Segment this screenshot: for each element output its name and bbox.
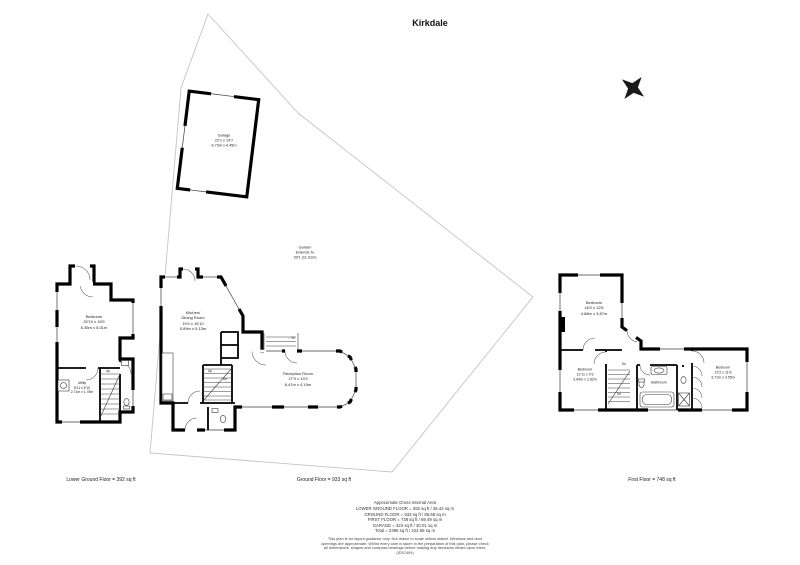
summary-line: LOWER GROUND FLOOR = 392 sq ft / 36.42 s… bbox=[356, 506, 454, 512]
first-floor-plan bbox=[560, 275, 747, 410]
lg-utility-label: Utility8'11 x 5'102.71m x 1.78m bbox=[71, 381, 93, 395]
lg-toilet bbox=[124, 399, 130, 409]
bathroom-toilet bbox=[639, 379, 645, 387]
lg-sink bbox=[122, 361, 129, 366]
first-caption: First Floor = 748 sq ft bbox=[628, 477, 675, 483]
area-summary-heading: Approximate Gross Internal Area bbox=[356, 500, 454, 506]
lg-stairs-up-label: Up bbox=[106, 369, 110, 373]
page-title: Kirkdale bbox=[412, 18, 448, 28]
entrance-arrow-icon: ← bbox=[287, 336, 290, 340]
ff-bedroom1-label: Bedroom16'0 x 12'84.88m x 3.87m bbox=[581, 300, 607, 316]
ff-stairs-dn-label: Dn bbox=[622, 362, 626, 366]
kitchen-label: Kitchen/Dining Room 19'4 x 16'105.89m x … bbox=[180, 310, 206, 332]
compass-icon bbox=[613, 68, 652, 107]
summary-line: Total = 2396 sq ft / 222.59 sq m bbox=[356, 528, 454, 534]
ground-stairs-dn-label: Dn bbox=[223, 377, 227, 381]
floorplan-page: Kirkdale Garage22'1 x 14'76.73m x 4.45m … bbox=[0, 0, 800, 565]
garden-label: GardenExtends To39'1 (11.91m) bbox=[293, 245, 316, 260]
ground-caption: Ground Floor = 933 sq ft bbox=[297, 477, 351, 483]
lower-ground-plan bbox=[57, 266, 133, 422]
reception-label: Reception Room27'9 x 13'98.47m x 4.19m bbox=[283, 371, 313, 387]
entrance-label: ← IN bbox=[287, 336, 294, 340]
bathtub bbox=[640, 392, 674, 407]
lg-bedroom-label: Bedroom20'10 x 16'56.35m x 5.01m bbox=[81, 314, 107, 330]
ff-bathroom-label: Bathroom bbox=[651, 381, 667, 386]
chimney-breast bbox=[560, 317, 565, 332]
ff-stairs-dn2-label: Dn bbox=[617, 392, 621, 396]
ground-stairs-up-label: Up bbox=[208, 369, 212, 373]
lower-ground-caption: Lower Ground Floor = 392 sq ft bbox=[66, 477, 135, 483]
disclaimer-text: This plan is for layout guidance only. N… bbox=[321, 537, 489, 556]
ff-bedroom3-label: Bedroom12'2 x 11'83.71m x 3.55m bbox=[711, 366, 735, 381]
lg-washer bbox=[58, 380, 69, 391]
summary-line: FIRST FLOOR = 748 sq ft / 69.49 sq m bbox=[356, 517, 454, 523]
area-summary: Approximate Gross Internal Area LOWER GR… bbox=[356, 500, 454, 534]
kitchen-sink bbox=[163, 394, 172, 400]
garage-label: Garage22'1 x 14'76.73m x 4.45m bbox=[211, 133, 236, 148]
ff-bedroom2-label: Bedroom12'11 x 9'33.94m x 2.82m bbox=[573, 368, 597, 383]
bathroom-sink bbox=[651, 367, 667, 375]
ground-floor-plan bbox=[161, 269, 356, 430]
